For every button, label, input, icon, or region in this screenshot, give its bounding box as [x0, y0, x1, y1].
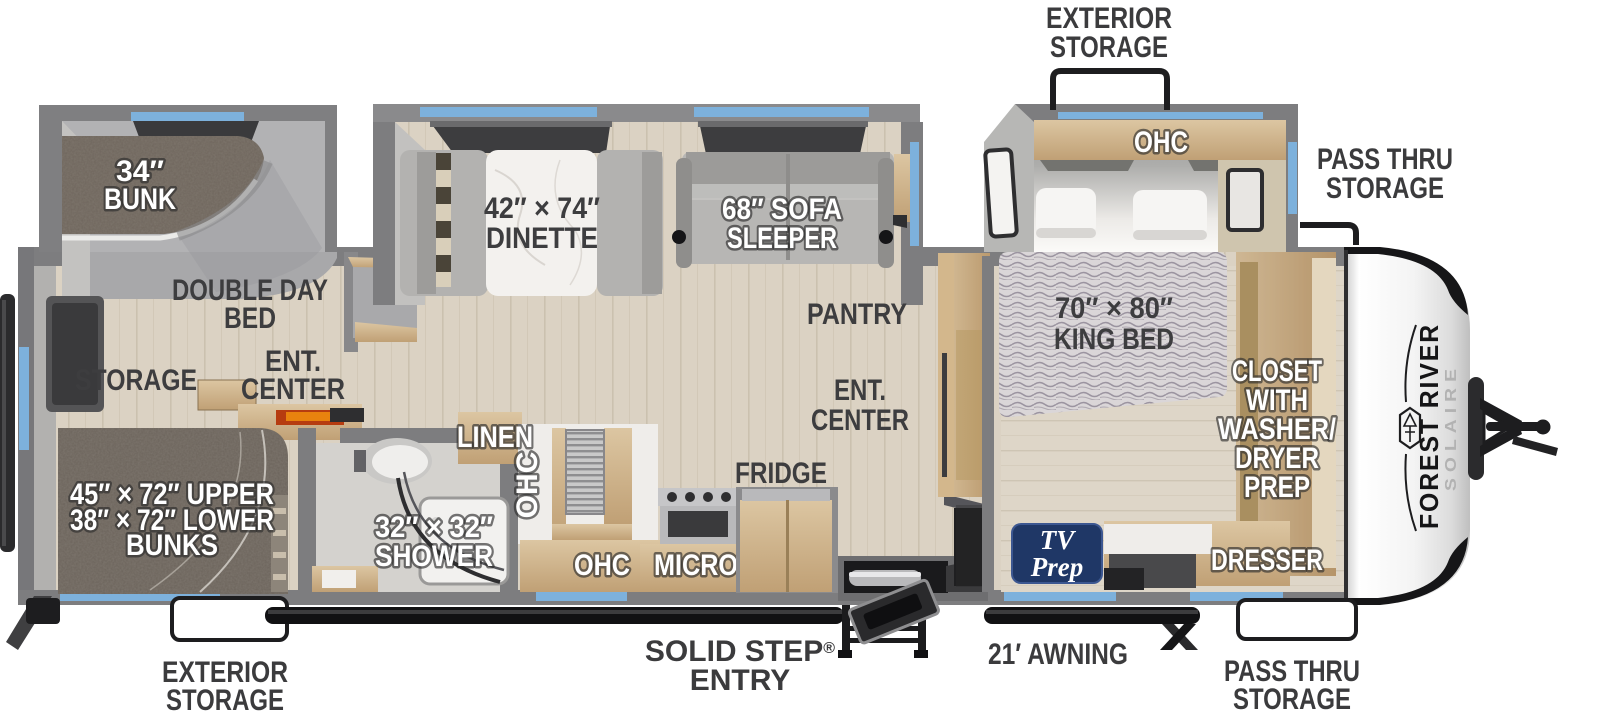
svg-text:PREP: PREP — [1244, 471, 1310, 504]
svg-text:BUNKS: BUNKS — [126, 529, 218, 562]
svg-text:21′ AWNING: 21′ AWNING — [988, 638, 1128, 671]
svg-text:ENT.: ENT. — [834, 374, 886, 407]
svg-text:STORAGE: STORAGE — [75, 364, 197, 397]
svg-text:FRIDGE: FRIDGE — [735, 457, 827, 490]
svg-text:BED: BED — [224, 302, 276, 335]
svg-text:42″ × 74″: 42″ × 74″ — [484, 192, 600, 225]
svg-text:STORAGE: STORAGE — [1233, 683, 1351, 716]
svg-text:OHC: OHC — [574, 549, 630, 582]
svg-text:OHC: OHC — [511, 452, 544, 519]
svg-text:ENTRY: ENTRY — [690, 664, 791, 697]
svg-text:FOREST RIVER: FOREST RIVER — [1414, 323, 1444, 529]
svg-text:70″ × 80″: 70″ × 80″ — [1055, 292, 1173, 325]
svg-text:DRESSER: DRESSER — [1211, 544, 1323, 577]
svg-text:SOLAIRE: SOLAIRE — [1443, 363, 1460, 491]
svg-text:KING BED: KING BED — [1054, 323, 1174, 356]
svg-text:CENTER: CENTER — [241, 373, 345, 406]
svg-text:STORAGE: STORAGE — [1326, 172, 1444, 205]
svg-text:Prep: Prep — [1030, 552, 1083, 582]
svg-text:CENTER: CENTER — [811, 404, 909, 437]
svg-text:PANTRY: PANTRY — [807, 298, 907, 331]
svg-text:SLEEPER: SLEEPER — [727, 222, 837, 255]
svg-text:MICRO: MICRO — [654, 549, 738, 582]
svg-text:BUNK: BUNK — [104, 183, 176, 216]
svg-text:STORAGE: STORAGE — [166, 684, 284, 717]
svg-text:DINETTE: DINETTE — [486, 222, 598, 255]
svg-text:STORAGE: STORAGE — [1050, 31, 1168, 64]
svg-text:SHOWER: SHOWER — [375, 540, 493, 573]
svg-text:OHC: OHC — [1134, 126, 1188, 159]
svg-text:TV: TV — [1040, 525, 1076, 555]
svg-text:LINEN: LINEN — [457, 421, 533, 454]
